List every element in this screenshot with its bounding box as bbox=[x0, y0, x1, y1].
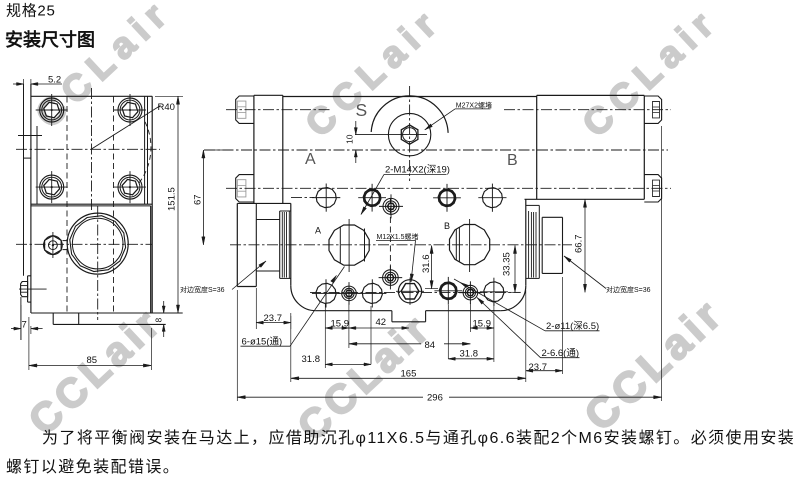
svg-text:规格25: 规格25 bbox=[6, 3, 56, 20]
svg-text:B: B bbox=[444, 221, 450, 231]
svg-text:165: 165 bbox=[401, 369, 417, 380]
svg-text:CCLair: CCLair bbox=[28, 0, 180, 136]
svg-text:CCLair: CCLair bbox=[298, 0, 450, 145]
svg-text:CCLair: CCLair bbox=[20, 298, 172, 444]
svg-text:296: 296 bbox=[427, 393, 443, 404]
svg-text:84: 84 bbox=[425, 340, 436, 351]
svg-text:15.9: 15.9 bbox=[331, 319, 350, 330]
svg-text:10: 10 bbox=[345, 134, 355, 144]
svg-text:67: 67 bbox=[193, 194, 204, 205]
svg-text:31.6: 31.6 bbox=[421, 255, 432, 274]
svg-text:23.7: 23.7 bbox=[529, 362, 548, 373]
svg-text:安装尺寸图: 安装尺寸图 bbox=[5, 29, 95, 50]
svg-text:7: 7 bbox=[22, 320, 27, 331]
svg-text:23.7: 23.7 bbox=[264, 313, 283, 324]
svg-text:2-M14X2(深19): 2-M14X2(深19) bbox=[385, 165, 450, 176]
svg-text:5.2: 5.2 bbox=[48, 75, 61, 86]
svg-text:对边宽度S=36: 对边宽度S=36 bbox=[180, 285, 225, 294]
svg-text:33.35: 33.35 bbox=[502, 252, 513, 276]
svg-text:8: 8 bbox=[154, 318, 164, 323]
svg-text:85: 85 bbox=[87, 355, 98, 366]
svg-text:对边宽度S=36: 对边宽度S=36 bbox=[606, 285, 651, 294]
svg-text:R40: R40 bbox=[158, 102, 175, 113]
svg-text:B: B bbox=[507, 152, 518, 169]
svg-text:CCLair: CCLair bbox=[576, 289, 734, 441]
svg-text:31.8: 31.8 bbox=[302, 354, 321, 365]
svg-text:M12X1.5螺堵: M12X1.5螺堵 bbox=[377, 232, 419, 241]
svg-text:2-ø11(深6.5): 2-ø11(深6.5) bbox=[546, 321, 599, 332]
svg-text:15.9: 15.9 bbox=[473, 319, 492, 330]
svg-text:M27X2螺堵: M27X2螺堵 bbox=[456, 101, 492, 110]
svg-text:A: A bbox=[315, 226, 321, 236]
svg-text:31.8: 31.8 bbox=[460, 349, 479, 360]
svg-text:66.7: 66.7 bbox=[574, 235, 585, 254]
svg-text:A: A bbox=[305, 151, 316, 168]
svg-text:151.5: 151.5 bbox=[167, 187, 178, 211]
svg-text:42: 42 bbox=[376, 317, 387, 328]
svg-text:S: S bbox=[356, 100, 368, 120]
